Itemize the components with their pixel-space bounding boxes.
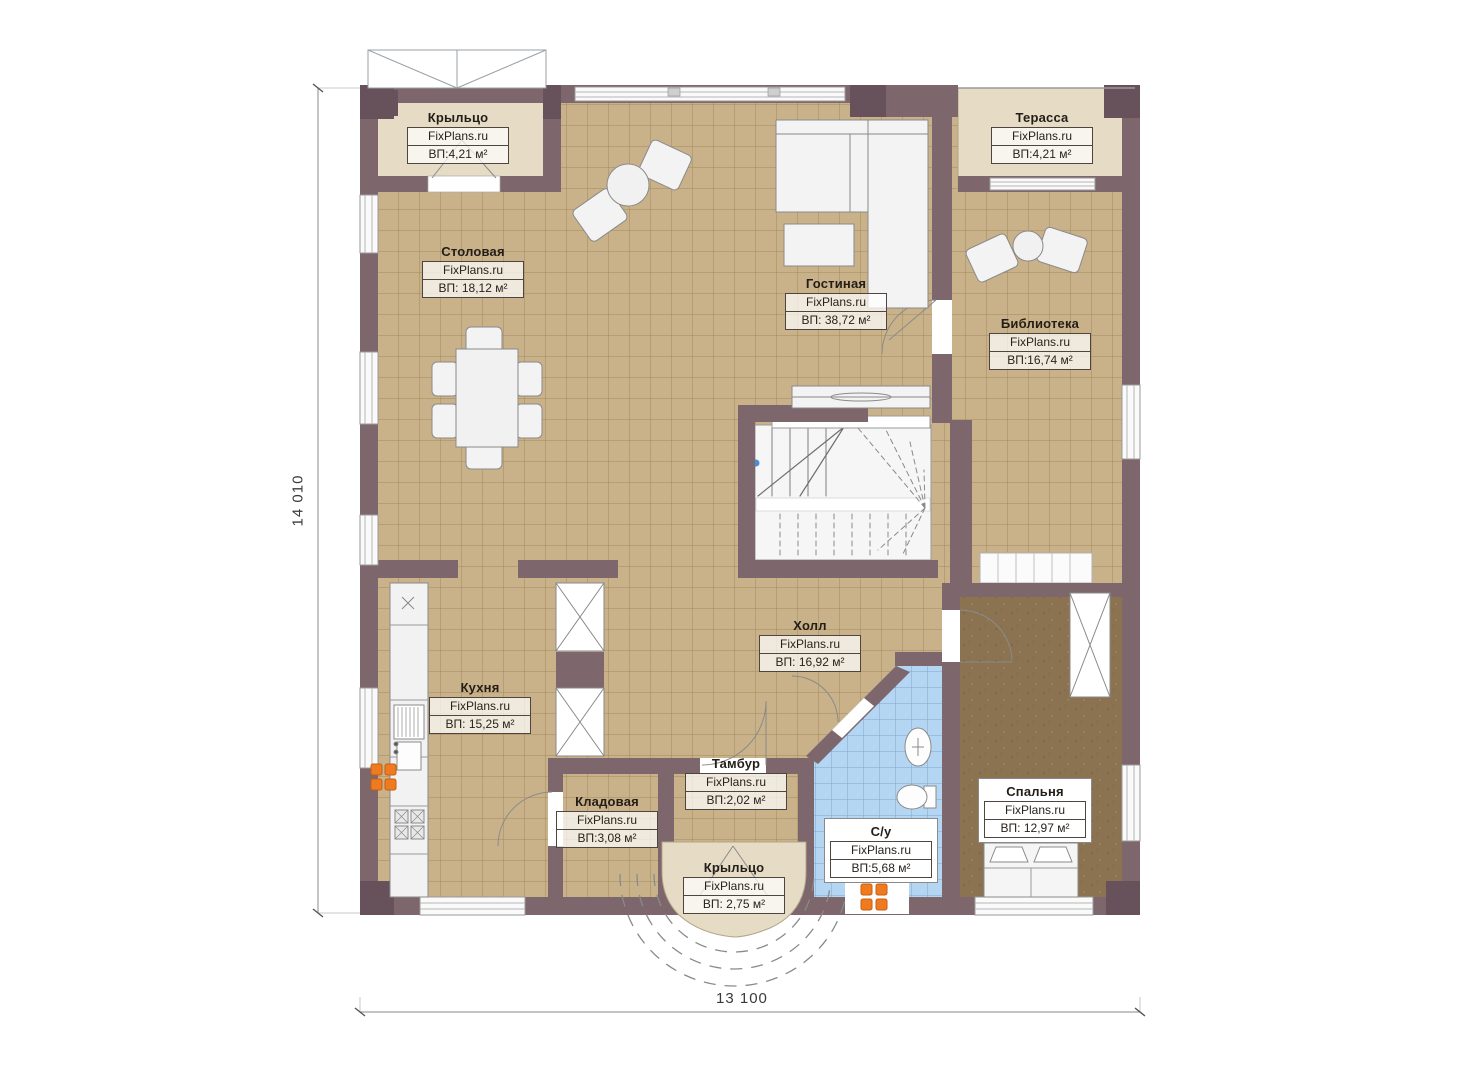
wardrobe xyxy=(1070,593,1110,697)
radiator-bathroom xyxy=(845,882,909,914)
kitchen-counter xyxy=(390,583,428,897)
floor-plan-drawing xyxy=(0,0,1474,1080)
toilet xyxy=(897,785,927,809)
bed xyxy=(984,843,1078,897)
dimension-height: 14 010 xyxy=(289,475,306,527)
staircase xyxy=(753,416,932,560)
tv-console xyxy=(792,386,930,408)
porch-canopy xyxy=(368,50,546,88)
floor-plan-page: Крыльцо FixPlans.ru ВП:4,21 м² Терасса F… xyxy=(0,0,1474,1080)
library-step-tiles xyxy=(980,553,1092,583)
dimension-width: 13 100 xyxy=(716,990,768,1007)
coffee-table xyxy=(784,224,854,266)
